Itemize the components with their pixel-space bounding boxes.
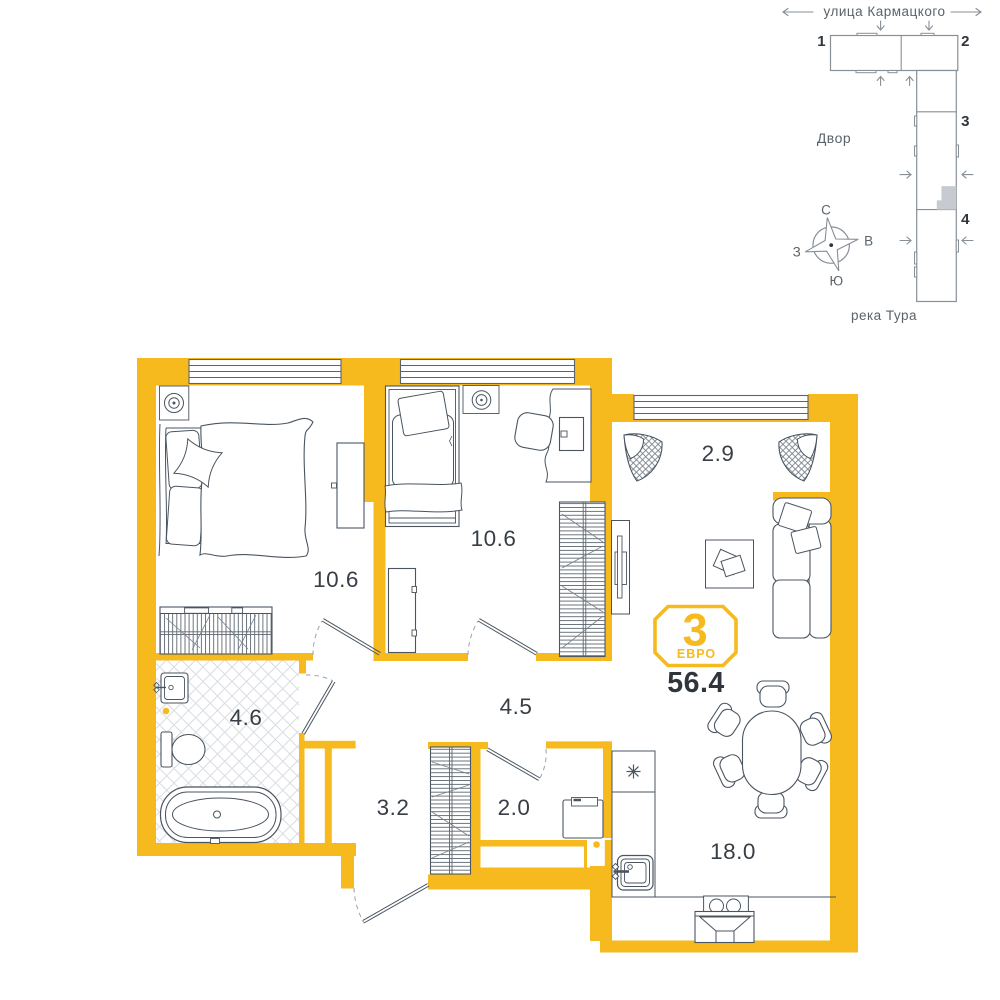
svg-text:Двор: Двор xyxy=(817,130,851,146)
svg-text:3.2: 3.2 xyxy=(377,795,410,820)
svg-text:улица Кармацкого: улица Кармацкого xyxy=(824,4,946,19)
svg-text:река Тура: река Тура xyxy=(851,308,917,323)
svg-text:2: 2 xyxy=(961,33,970,50)
svg-text:4.5: 4.5 xyxy=(500,694,533,719)
svg-text:10.6: 10.6 xyxy=(313,567,359,592)
svg-text:10.6: 10.6 xyxy=(471,526,517,551)
svg-text:4.6: 4.6 xyxy=(230,705,263,730)
svg-text:С: С xyxy=(821,203,831,218)
svg-text:1: 1 xyxy=(817,33,826,50)
svg-text:В: В xyxy=(864,234,874,249)
svg-text:З: З xyxy=(793,245,802,260)
svg-text:ЕВРО: ЕВРО xyxy=(677,647,716,661)
svg-text:2.9: 2.9 xyxy=(702,441,735,466)
svg-text:56.4: 56.4 xyxy=(667,667,724,699)
svg-text:Ю: Ю xyxy=(830,274,844,289)
svg-text:2.0: 2.0 xyxy=(498,795,531,820)
svg-text:4: 4 xyxy=(961,211,970,228)
svg-text:18.0: 18.0 xyxy=(710,839,756,864)
svg-text:3: 3 xyxy=(961,113,970,130)
